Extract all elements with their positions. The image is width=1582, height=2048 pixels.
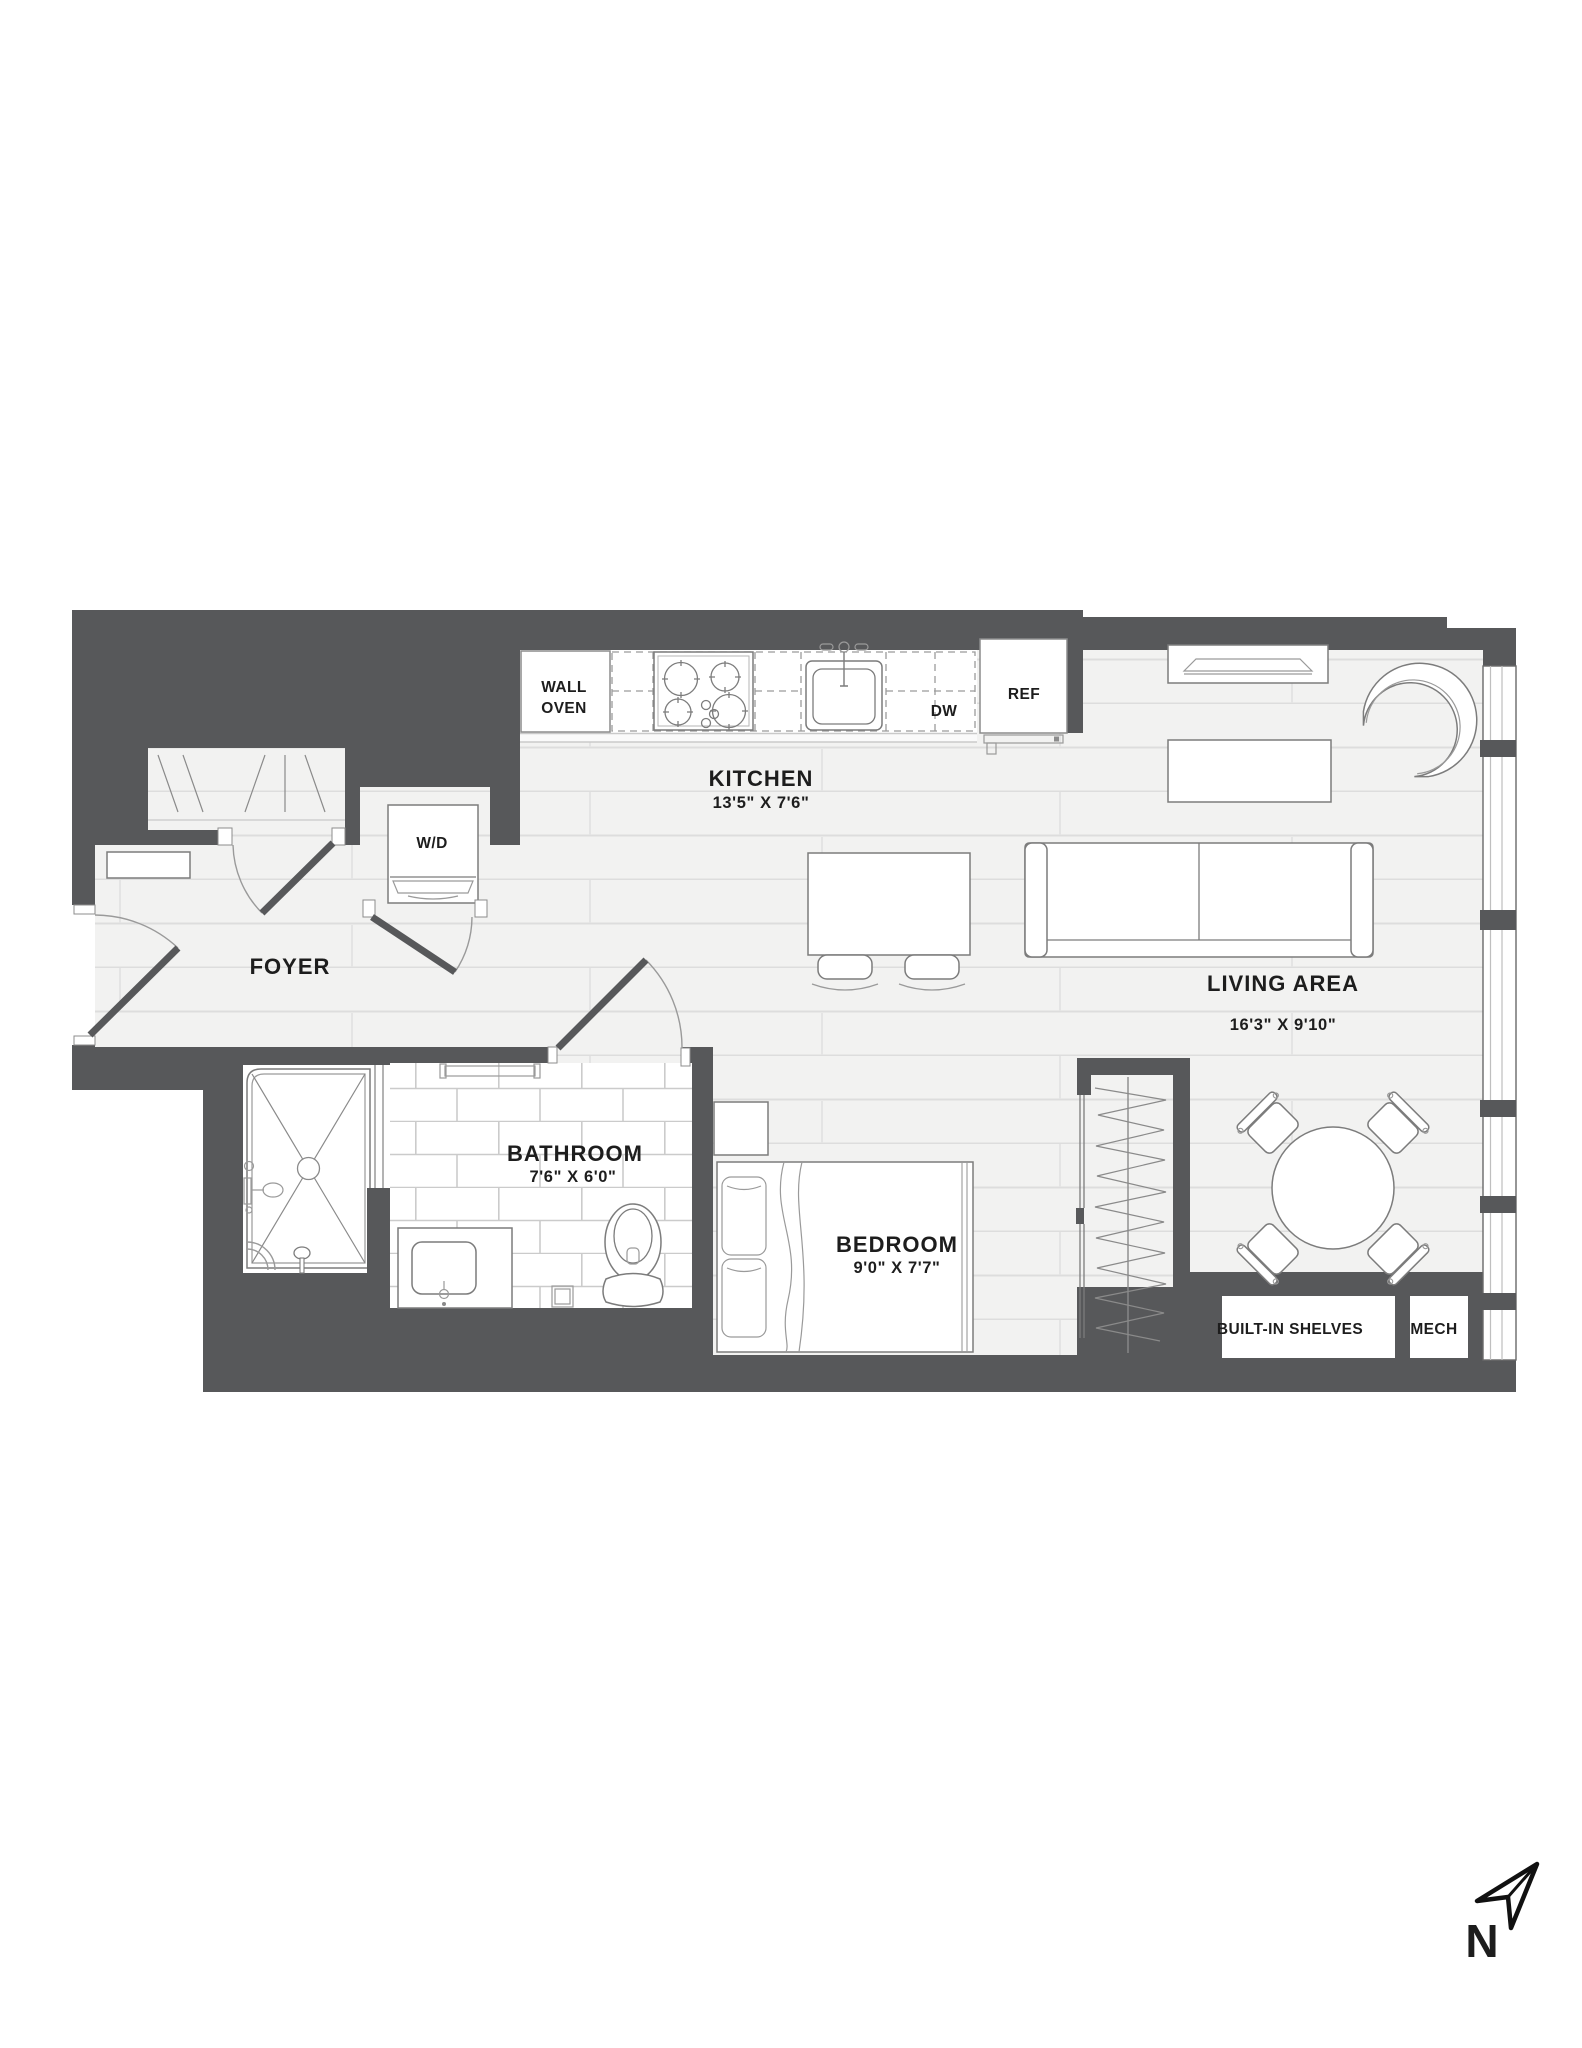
coffee-table bbox=[1168, 740, 1331, 802]
closet-left-stub-bottom bbox=[1077, 1338, 1085, 1360]
dining-table bbox=[1272, 1127, 1394, 1249]
washer-dryer-label: W/D bbox=[416, 835, 447, 852]
cooktop-icon bbox=[654, 652, 753, 730]
closet-left-stub-mid bbox=[1076, 1208, 1084, 1224]
living-area-dims: 16'3" X 9'10" bbox=[1230, 1016, 1337, 1034]
shelves-top-wall bbox=[1190, 1272, 1483, 1300]
dishwasher-label: DW bbox=[931, 703, 958, 720]
foyer-label: FOYER bbox=[250, 954, 331, 979]
media-console bbox=[1168, 645, 1328, 683]
bedroom-label: BEDROOM bbox=[836, 1232, 958, 1257]
bedroom-dims: 9'0" X 7'7" bbox=[854, 1259, 941, 1277]
foyer-console bbox=[107, 852, 190, 878]
shower bbox=[243, 1065, 390, 1273]
bed bbox=[717, 1162, 973, 1352]
bathroom bbox=[243, 1063, 692, 1308]
washer-dryer-icon bbox=[388, 805, 478, 903]
kitchen-dims: 13'5" X 7'6" bbox=[713, 794, 810, 812]
closet-left-stub-top bbox=[1077, 1058, 1091, 1095]
compass: N bbox=[1465, 1864, 1537, 1967]
kitchen-label: KITCHEN bbox=[709, 766, 814, 791]
bathroom-vanity bbox=[398, 1228, 512, 1308]
closet-right-wall bbox=[1173, 1058, 1190, 1360]
floor-plan-page: FOYER KITCHEN 13'5" X 7'6" LIVING AREA 1… bbox=[0, 0, 1582, 2048]
bathroom-dims: 7'6" X 6'0" bbox=[530, 1168, 617, 1186]
wall-oven-label-line2: OVEN bbox=[541, 700, 587, 717]
top-wall-step bbox=[1083, 610, 1447, 617]
mech-label: MECH bbox=[1410, 1321, 1457, 1338]
shower-drain bbox=[298, 1158, 320, 1180]
floor-plan-canvas: FOYER KITCHEN 13'5" X 7'6" LIVING AREA 1… bbox=[0, 0, 1582, 2048]
nightstand bbox=[714, 1102, 768, 1155]
window-wall bbox=[1480, 666, 1516, 1360]
toilet-icon bbox=[603, 1204, 663, 1307]
entry-door-opening bbox=[70, 905, 95, 1045]
wall-stub-right-of-ref bbox=[1067, 638, 1083, 733]
window-glass-band bbox=[1483, 666, 1516, 1360]
refrigerator-label: REF bbox=[1008, 686, 1040, 703]
wall-oven-label-line1: WALL bbox=[541, 679, 587, 696]
north-letter: N bbox=[1465, 1915, 1498, 1967]
shelves-mech-divider bbox=[1395, 1296, 1410, 1358]
bathroom-label: BATHROOM bbox=[507, 1141, 643, 1166]
living-area-label: LIVING AREA bbox=[1207, 971, 1359, 996]
sofa bbox=[1025, 843, 1373, 957]
built-in-shelves-label: BUILT-IN SHELVES bbox=[1217, 1321, 1363, 1338]
shower-half-wall bbox=[367, 1188, 390, 1273]
